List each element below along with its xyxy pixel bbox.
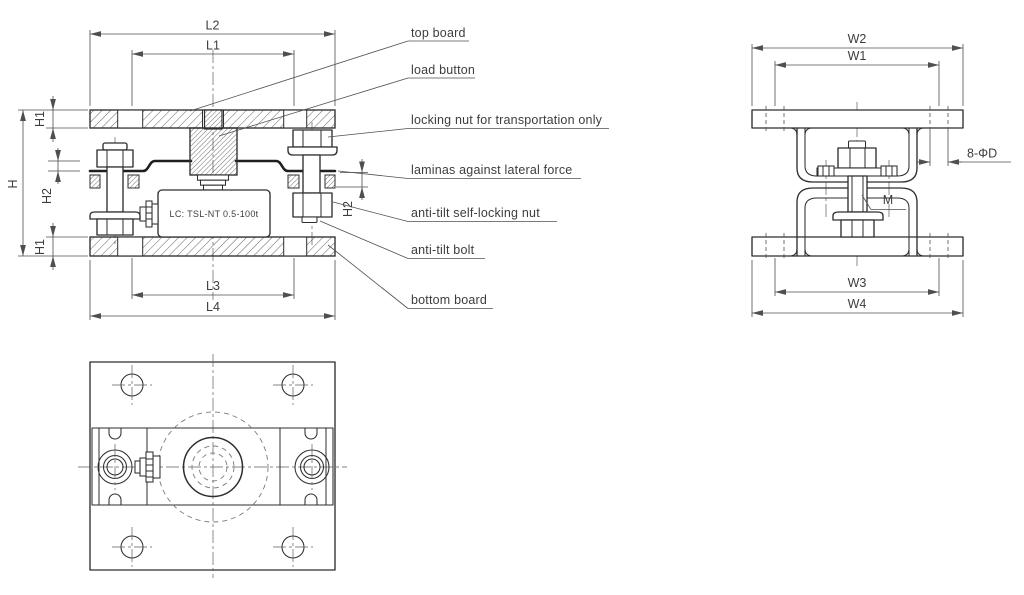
dim-thread-label: M	[883, 193, 893, 207]
technical-drawing-page: LC: TSL-NT 0.5-100t	[0, 0, 1024, 595]
callout-anti-tilt-nut: anti-tilt self-locking nut	[333, 202, 557, 222]
plan-cell-band	[92, 428, 333, 505]
dim-hole-count-label: 8-ΦD	[967, 147, 997, 161]
dim-l3-label: L3	[206, 279, 220, 293]
dim-l2-label: L2	[206, 19, 220, 33]
dim-w4-label: W4	[848, 297, 867, 311]
dim-l1-label: L1	[206, 39, 220, 53]
side-top-plate	[752, 110, 963, 128]
dim-w2-label: W2	[848, 32, 867, 46]
callout-labels: top board load button locking nut for tr…	[190, 26, 609, 309]
dim-w3-label: W3	[848, 276, 867, 290]
front-view: LC: TSL-NT 0.5-100t	[6, 19, 368, 321]
dim-h1-top-label: H1	[33, 111, 47, 127]
bottom-board	[90, 237, 335, 256]
callout-anti-tilt-nut-text: anti-tilt self-locking nut	[411, 206, 540, 220]
dim-h1-bottom-label: H1	[33, 239, 47, 255]
load-cell-body: LC: TSL-NT 0.5-100t	[140, 190, 270, 237]
callout-load-button-text: load button	[411, 63, 475, 77]
load-cell-mount-drawing: LC: TSL-NT 0.5-100t	[0, 0, 1024, 595]
callout-locking-nut: locking nut for transportation only	[328, 113, 609, 137]
callout-laminas-text: laminas against lateral force	[411, 163, 572, 177]
callout-laminas: laminas against lateral force	[338, 163, 581, 179]
side-view: W2 W1 W3 W4 8-ΦD M	[752, 32, 1011, 317]
dim-h2-left-label: H2	[40, 188, 54, 204]
callout-anti-tilt-bolt-text: anti-tilt bolt	[411, 243, 475, 257]
callout-anti-tilt-bolt: anti-tilt bolt	[320, 221, 485, 259]
callout-bottom-board-text: bottom board	[411, 293, 487, 307]
anti-tilt-bolt-left	[90, 143, 140, 235]
dim-h-label: H	[6, 179, 20, 188]
dim-w1-label: W1	[848, 49, 867, 63]
dim-h2-right-label: H2	[341, 201, 355, 217]
side-center-assembly	[817, 141, 897, 237]
plan-cable-connector	[135, 452, 160, 482]
plan-view	[78, 354, 347, 578]
callout-top-board-text: top board	[411, 26, 466, 40]
load-cell-model-label: LC: TSL-NT 0.5-100t	[170, 209, 259, 219]
callout-locking-nut-text: locking nut for transportation only	[411, 113, 603, 127]
cable-connector	[140, 201, 158, 227]
side-bottom-plate	[752, 237, 963, 256]
dim-l4-label: L4	[206, 300, 220, 314]
